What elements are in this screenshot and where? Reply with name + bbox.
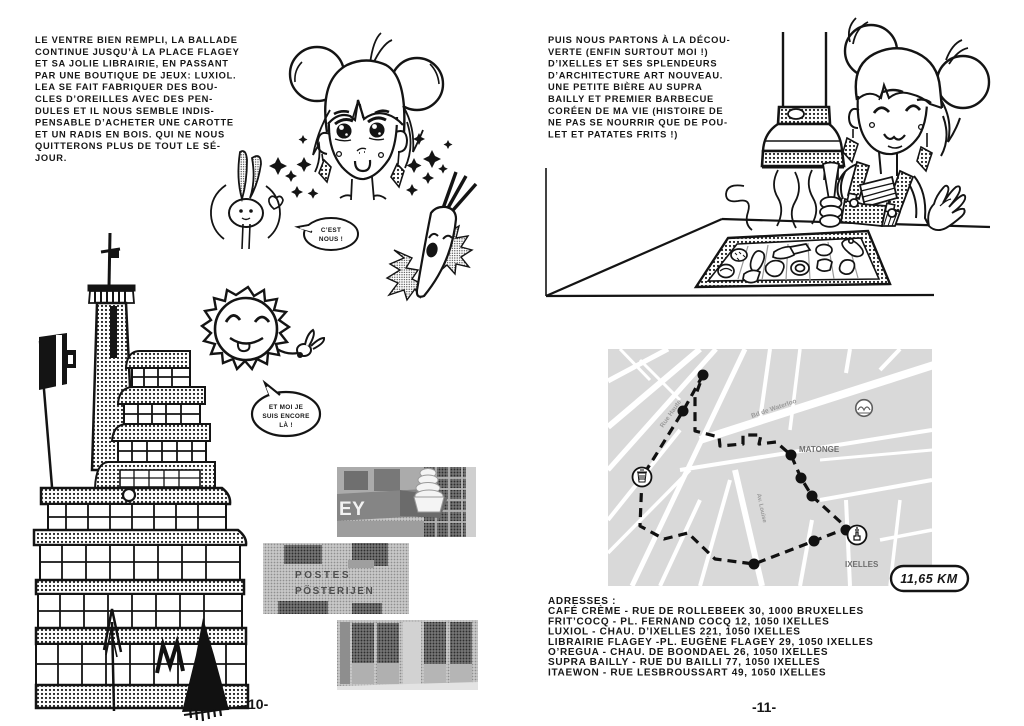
svg-text:PAR UNE BOUTIQUE DE JEUX: LUXI: PAR UNE BOUTIQUE DE JEUX: LUXIOL. [35,70,236,80]
svg-text:LE VENTRE BIEN REMPLI, LA BALL: LE VENTRE BIEN REMPLI, LA BALLADE [35,35,238,45]
svg-text:VERTE (ENFIN SURTOUT MOI !): VERTE (ENFIN SURTOUT MOI !) [548,47,708,57]
svg-text:IXELLES: IXELLES [845,560,879,569]
svg-text:ET SA JOLIE LIBRAIRIE, EN PASS: ET SA JOLIE LIBRAIRIE, EN PASSANT [35,59,229,69]
svg-text:LET ET PATATES FRITS !): LET ET PATATES FRITS !) [548,129,678,139]
svg-text:SUIS ENCORE: SUIS ENCORE [262,413,310,420]
svg-text:PUIS NOUS PARTONS À LA DÉCOU-: PUIS NOUS PARTONS À LA DÉCOU- [548,35,730,45]
svg-text:POSTES: POSTES [295,570,351,581]
svg-text:10-: 10- [248,696,269,712]
svg-text:EY: EY [339,499,365,520]
svg-text:CAFÉ CRÈME - RUE DE ROLLEBEEK: CAFÉ CRÈME - RUE DE ROLLEBEEK 30, 1000 B… [548,604,864,617]
svg-text:DULES ET IL NOUS SEMBLE INDIS-: DULES ET IL NOUS SEMBLE INDIS- [35,106,215,116]
svg-text:LIBRAIRIE FLAGEY -PL. EUGÈNE F: LIBRAIRIE FLAGEY -PL. EUGÈNE FLAGEY 29, … [548,635,874,648]
svg-text:PÖSTERIJEN: PÖSTERIJEN [295,584,374,597]
svg-text:MATONGE: MATONGE [799,445,840,454]
svg-text:NOUS !: NOUS ! [319,236,343,243]
svg-text:D’IXELLES ET SES SPLENDEURS: D’IXELLES ET SES SPLENDEURS [548,59,717,69]
svg-text:CORÉEN DE MA VIE (HISTOIRE DE: CORÉEN DE MA VIE (HISTOIRE DE [548,106,723,116]
svg-text:CLES D’OREILLES AVEC DES PEN-: CLES D’OREILLES AVEC DES PEN- [35,94,213,104]
svg-text:C’EST: C’EST [321,227,341,234]
svg-text:LEA SE FAIT FABRIQUER DES BOU-: LEA SE FAIT FABRIQUER DES BOU- [35,82,218,92]
svg-text:ITAEWON - RUE LESBROUSSART 49,: ITAEWON - RUE LESBROUSSART 49, 1050 IXEL… [548,667,826,678]
svg-text:11,65 KM: 11,65 KM [900,572,957,586]
svg-text:ET UN RADIS EN BOIS. QUI NE NO: ET UN RADIS EN BOIS. QUI NE NOUS [35,129,225,139]
svg-text:CONTINUE JUSQU’À LA PLACE FLAG: CONTINUE JUSQU’À LA PLACE FLAGEY [35,47,240,57]
svg-text:LÀ !: LÀ ! [279,420,293,429]
svg-text:-11-: -11- [752,699,776,715]
svg-text:D’ARCHITECTURE ART NOUVEAU.: D’ARCHITECTURE ART NOUVEAU. [548,70,723,80]
svg-text:PENSABLE D’ACHETER UNE CAROTTE: PENSABLE D’ACHETER UNE CAROTTE [35,118,234,128]
svg-text:BAILLY ET PREMIER BARBECUE: BAILLY ET PREMIER BARBECUE [548,94,714,104]
svg-text:QUITTERONS PLUS DE TOUT LE SÉ-: QUITTERONS PLUS DE TOUT LE SÉ- [35,141,221,151]
svg-text:UNE PETITE BIÈRE AU SUPRA: UNE PETITE BIÈRE AU SUPRA [548,82,703,92]
svg-text:ET MOI JE: ET MOI JE [269,404,304,411]
svg-text:NE PAS SE NOURRIR QUE DE POU-: NE PAS SE NOURRIR QUE DE POU- [548,118,728,128]
svg-text:JOUR.: JOUR. [35,153,67,163]
